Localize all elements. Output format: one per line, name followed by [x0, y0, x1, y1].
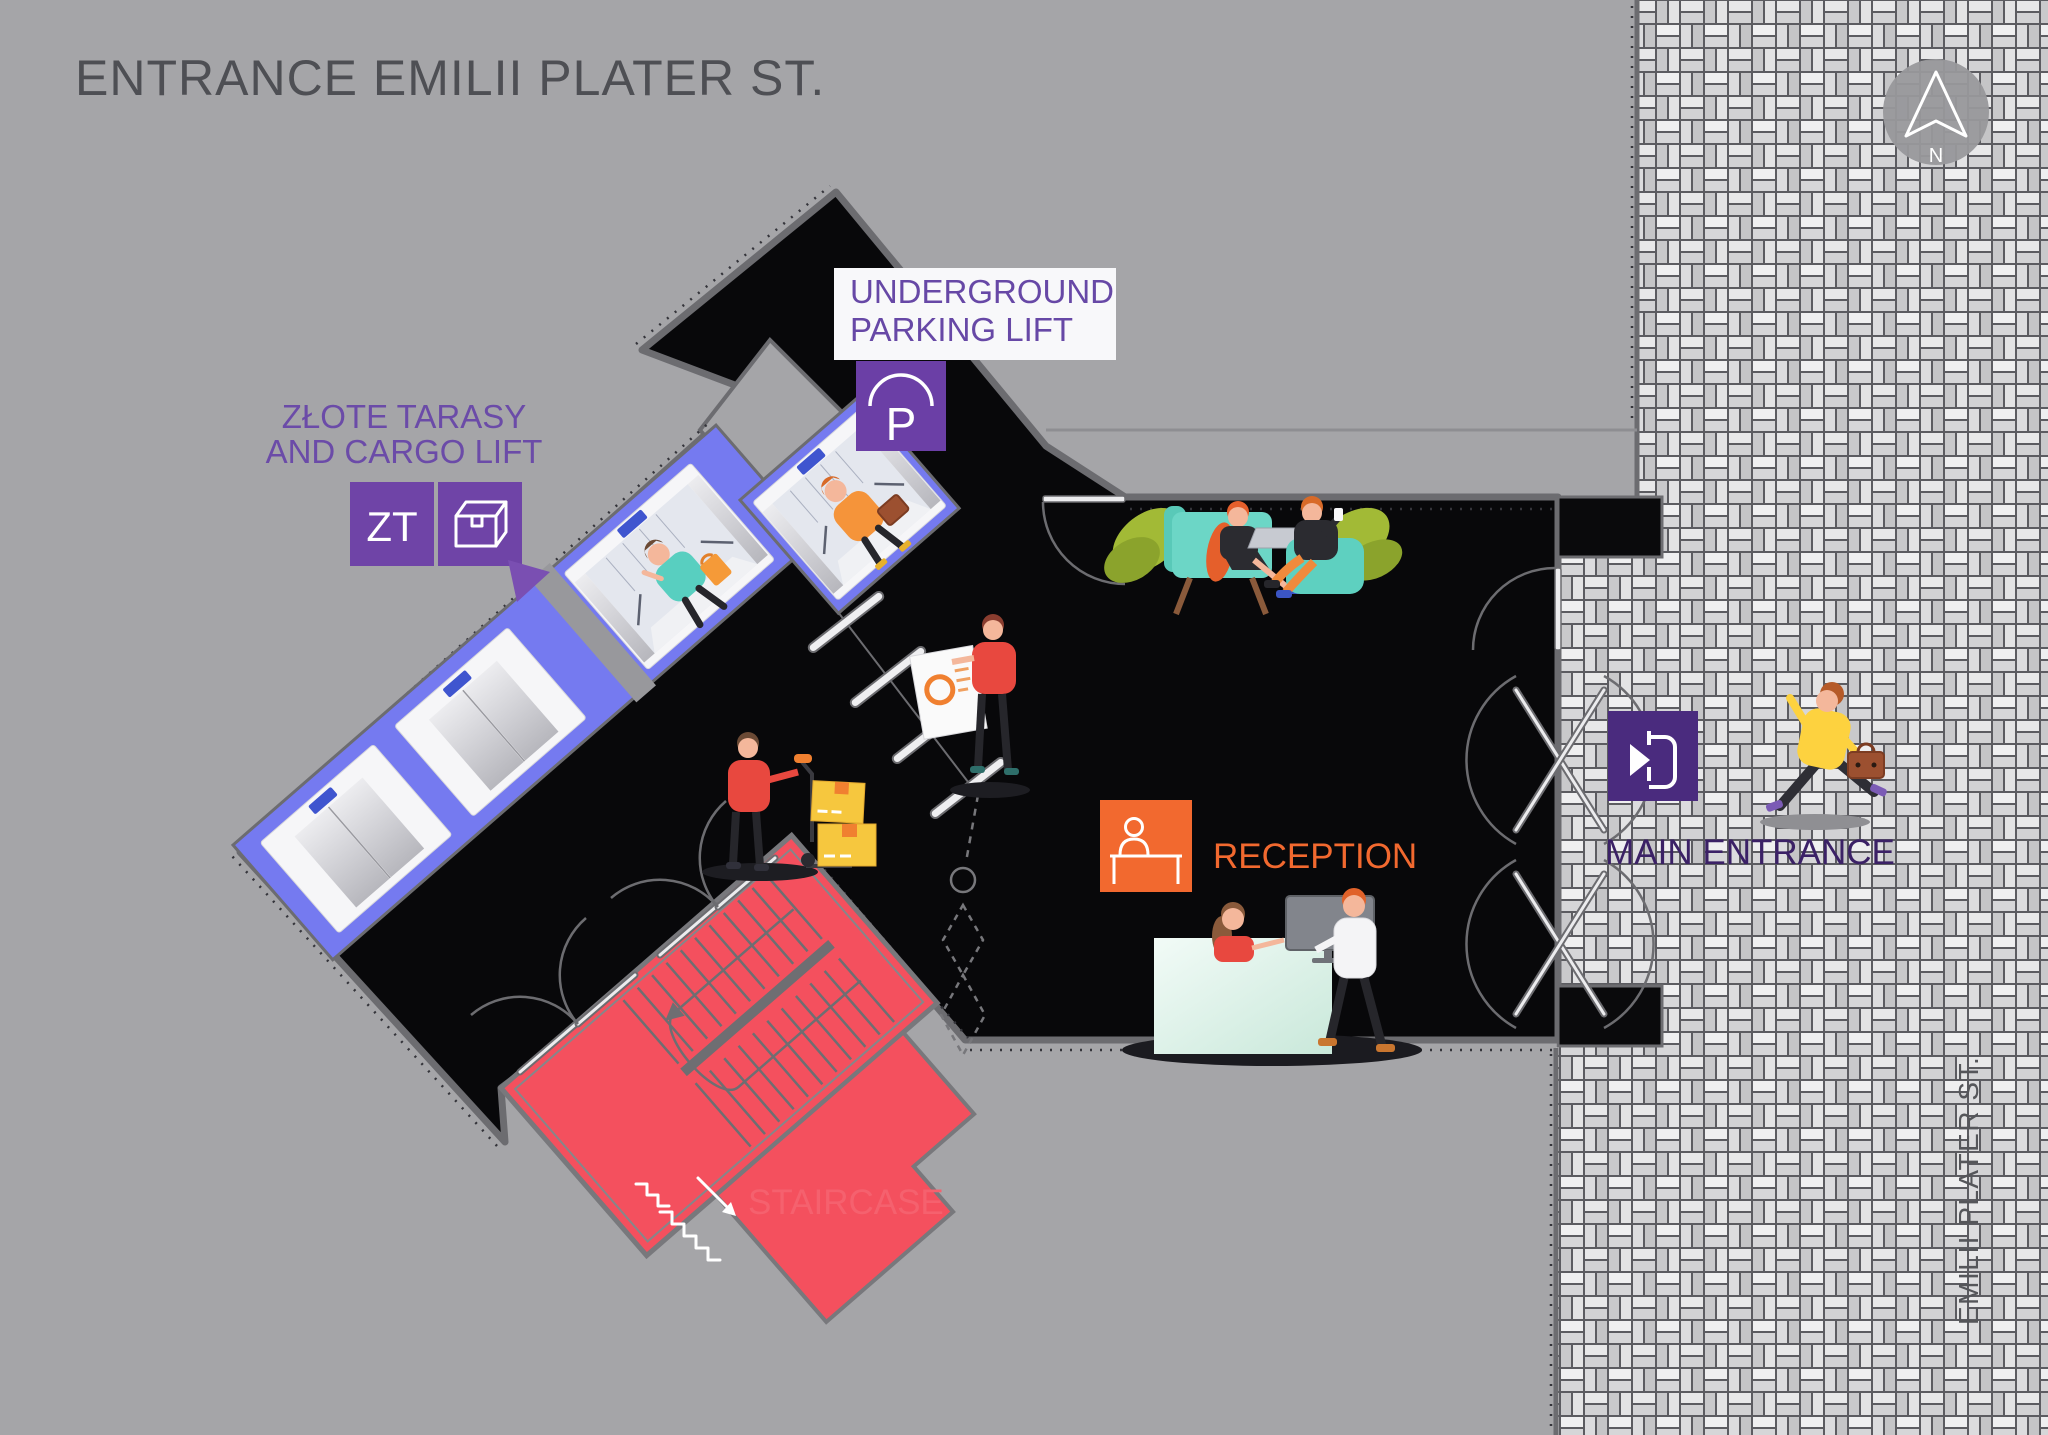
zt-badge-icon: ZT [350, 482, 434, 566]
enter-door-icon [1608, 711, 1698, 801]
parking-lift-icon: P [856, 361, 946, 451]
zlote-tarasy-label: ZŁOTE TARASY AND CARGO LIFT [266, 398, 543, 470]
floor-plan-canvas: EMILII PLATER ST. N [0, 0, 2048, 1435]
page-title: ENTRANCE EMILII PLATER ST. [75, 50, 825, 106]
underground-parking-line2: PARKING LIFT [850, 311, 1073, 348]
main-entrance-label: MAIN ENTRANCE [1605, 833, 1895, 872]
zlote-tarasy-line2: AND CARGO LIFT [266, 433, 543, 470]
underground-parking-line1: UNDERGROUND [850, 273, 1114, 310]
cargo-box-icon [438, 482, 522, 566]
compass-n-label: N [1929, 145, 1943, 167]
staircase-label: STAIRCASE [748, 1183, 944, 1222]
zt-badge-letters: ZT [366, 503, 417, 550]
parking-badge-letter: P [886, 398, 917, 450]
reception-label: RECEPTION [1213, 837, 1417, 876]
underground-parking-label: UNDERGROUND PARKING LIFT [834, 268, 1116, 360]
floor-plan-map: EMILII PLATER ST. N [0, 0, 2048, 1435]
street-label: EMILII PLATER ST. [1953, 1056, 1984, 1325]
reception-desk-icon [1100, 800, 1192, 892]
zlote-tarasy-line1: ZŁOTE TARASY [282, 398, 527, 435]
